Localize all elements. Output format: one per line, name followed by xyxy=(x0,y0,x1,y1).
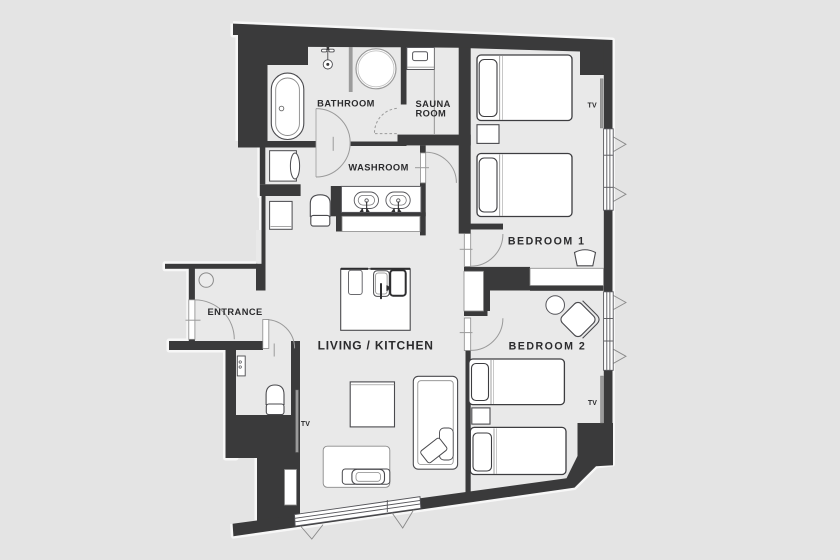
svg-text:WASHROOM: WASHROOM xyxy=(348,162,408,172)
svg-text:BEDROOM 1: BEDROOM 1 xyxy=(508,236,586,248)
svg-text:LIVING / KITCHEN: LIVING / KITCHEN xyxy=(318,338,434,352)
svg-text:TV: TV xyxy=(301,421,310,428)
svg-text:BATHROOM: BATHROOM xyxy=(317,99,375,109)
svg-text:ROOM: ROOM xyxy=(416,108,447,118)
svg-text:TV: TV xyxy=(588,400,597,407)
svg-text:TV: TV xyxy=(588,102,597,109)
svg-text:BEDROOM 2: BEDROOM 2 xyxy=(509,340,587,352)
svg-text:ENTRANCE: ENTRANCE xyxy=(207,307,262,317)
